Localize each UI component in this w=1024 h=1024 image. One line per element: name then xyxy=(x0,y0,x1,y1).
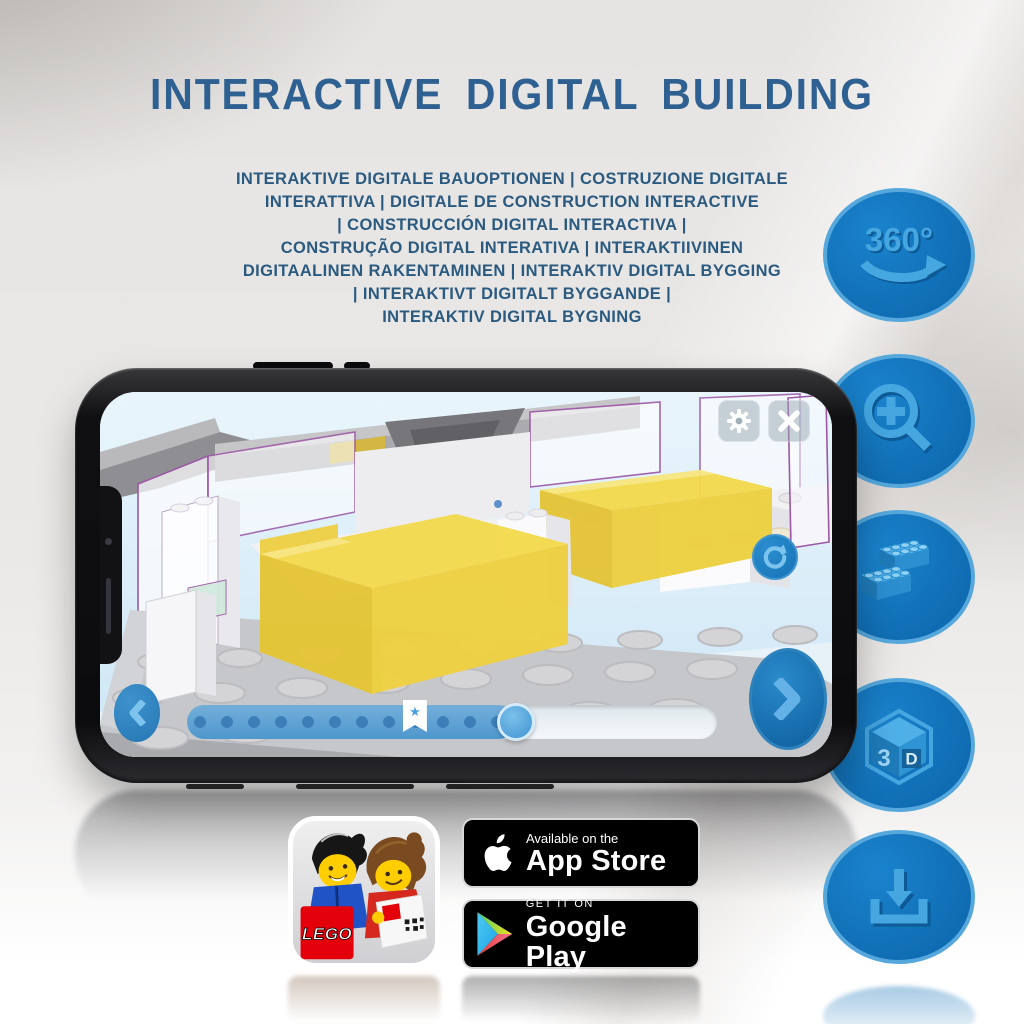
google-play-icon xyxy=(476,911,514,957)
settings-button[interactable] xyxy=(718,400,760,442)
minifigures-illustration: LEGO xyxy=(293,821,435,963)
download-icon xyxy=(823,830,975,964)
circle-reflection xyxy=(823,986,975,1024)
phone-speaker-slit xyxy=(446,784,554,789)
app-store-line1: Available on the xyxy=(526,831,666,846)
gear-icon xyxy=(726,408,752,434)
app-icon-reflection xyxy=(288,976,440,1022)
phone-speaker-slit xyxy=(186,784,244,789)
app-store-line2: App Store xyxy=(526,846,666,876)
google-play-line2: Google Play xyxy=(526,912,686,972)
slider-knob[interactable] xyxy=(497,703,535,741)
build-progress-slider[interactable]: ★ xyxy=(187,705,717,739)
apple-icon xyxy=(476,830,514,876)
app-store-badge[interactable]: Available on the App Store xyxy=(462,818,700,888)
speaker-icon xyxy=(106,578,111,634)
camera-icon xyxy=(105,538,112,545)
lego-app-icon[interactable]: LEGO xyxy=(288,816,440,968)
svg-text:LEGO: LEGO xyxy=(302,924,352,943)
previous-step-button[interactable] xyxy=(114,684,160,742)
svg-text:3: 3 xyxy=(877,745,890,772)
rotate-view-button[interactable] xyxy=(752,534,798,580)
lego-3d-model[interactable] xyxy=(100,392,832,757)
chevron-left-icon xyxy=(126,700,148,726)
rotate-cw-icon xyxy=(760,542,790,572)
close-button[interactable] xyxy=(768,400,810,442)
next-step-button[interactable] xyxy=(749,648,827,750)
svg-text:D: D xyxy=(905,750,917,769)
close-icon xyxy=(777,409,801,433)
badge-reflection xyxy=(462,976,700,1022)
chevron-right-icon xyxy=(771,678,805,720)
google-play-badge[interactable]: GET IT ON Google Play xyxy=(462,899,700,969)
google-play-line1: GET IT ON xyxy=(526,897,686,912)
page-title: INTERACTIVE DIGITAL BUILDING xyxy=(36,70,988,120)
poster: INTERACTIVE DIGITAL BUILDING INTERAKTIVE… xyxy=(0,0,1024,1024)
svg-text:360°: 360° xyxy=(865,221,933,258)
phone-speaker-slit xyxy=(296,784,414,789)
360-rotation-icon: 360° 360° xyxy=(823,188,975,322)
subtitle-line: INTERAKTIVE DIGITALE BAUOPTIONEN | COSTR… xyxy=(15,167,1008,190)
phone: ★ xyxy=(75,368,857,783)
phone-notch xyxy=(100,486,122,664)
progress-fill xyxy=(187,705,516,739)
app-screen: ★ xyxy=(100,392,832,757)
